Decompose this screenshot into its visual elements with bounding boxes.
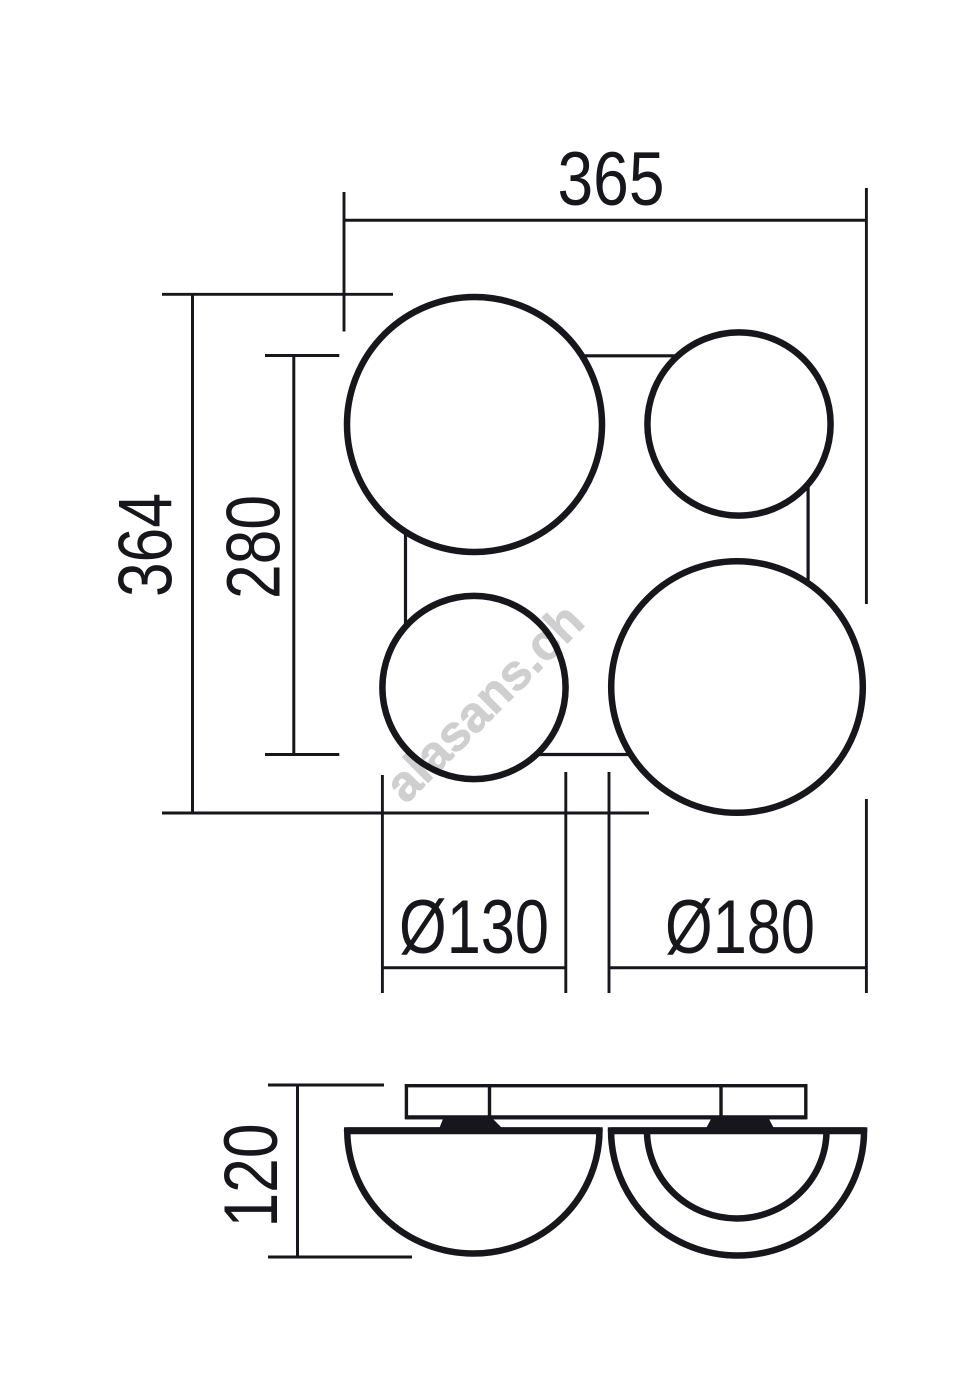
svg-text:365: 365 <box>558 137 665 222</box>
svg-text:364: 364 <box>104 493 189 597</box>
svg-text:Ø130: Ø130 <box>399 885 549 970</box>
svg-text:280: 280 <box>212 495 297 599</box>
svg-text:Ø180: Ø180 <box>665 885 815 970</box>
svg-text:120: 120 <box>209 1124 294 1228</box>
